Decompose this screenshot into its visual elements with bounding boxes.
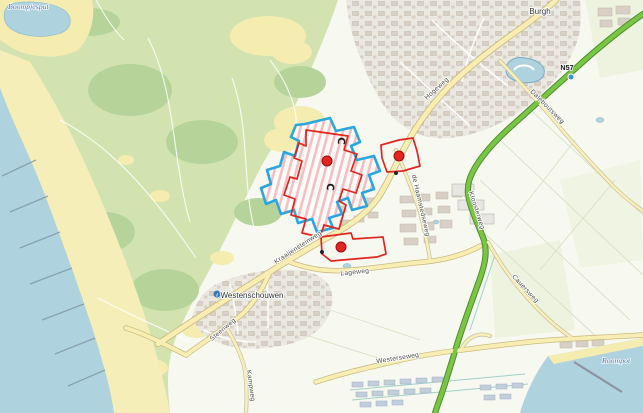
label-boompjesput: Boompjesput <box>8 2 50 11</box>
map-canvas[interactable]: C C i Boompjesput Roompot Burgh Westensc… <box>0 0 643 413</box>
camping-icon-1: C <box>335 137 347 145</box>
camping-icon-2: C <box>324 183 336 191</box>
label-westenschouwen: Westenschouwen <box>221 291 284 300</box>
label-n57-badge: N57 <box>560 63 573 72</box>
label-burgh: Burgh <box>529 7 550 16</box>
label-roompot: Roompot <box>601 356 631 365</box>
red-dot-marker-1 <box>322 156 332 166</box>
red-dot-marker-3 <box>336 242 346 252</box>
red-dot-marker-2 <box>394 151 404 161</box>
poi-icon[interactable] <box>568 74 574 80</box>
